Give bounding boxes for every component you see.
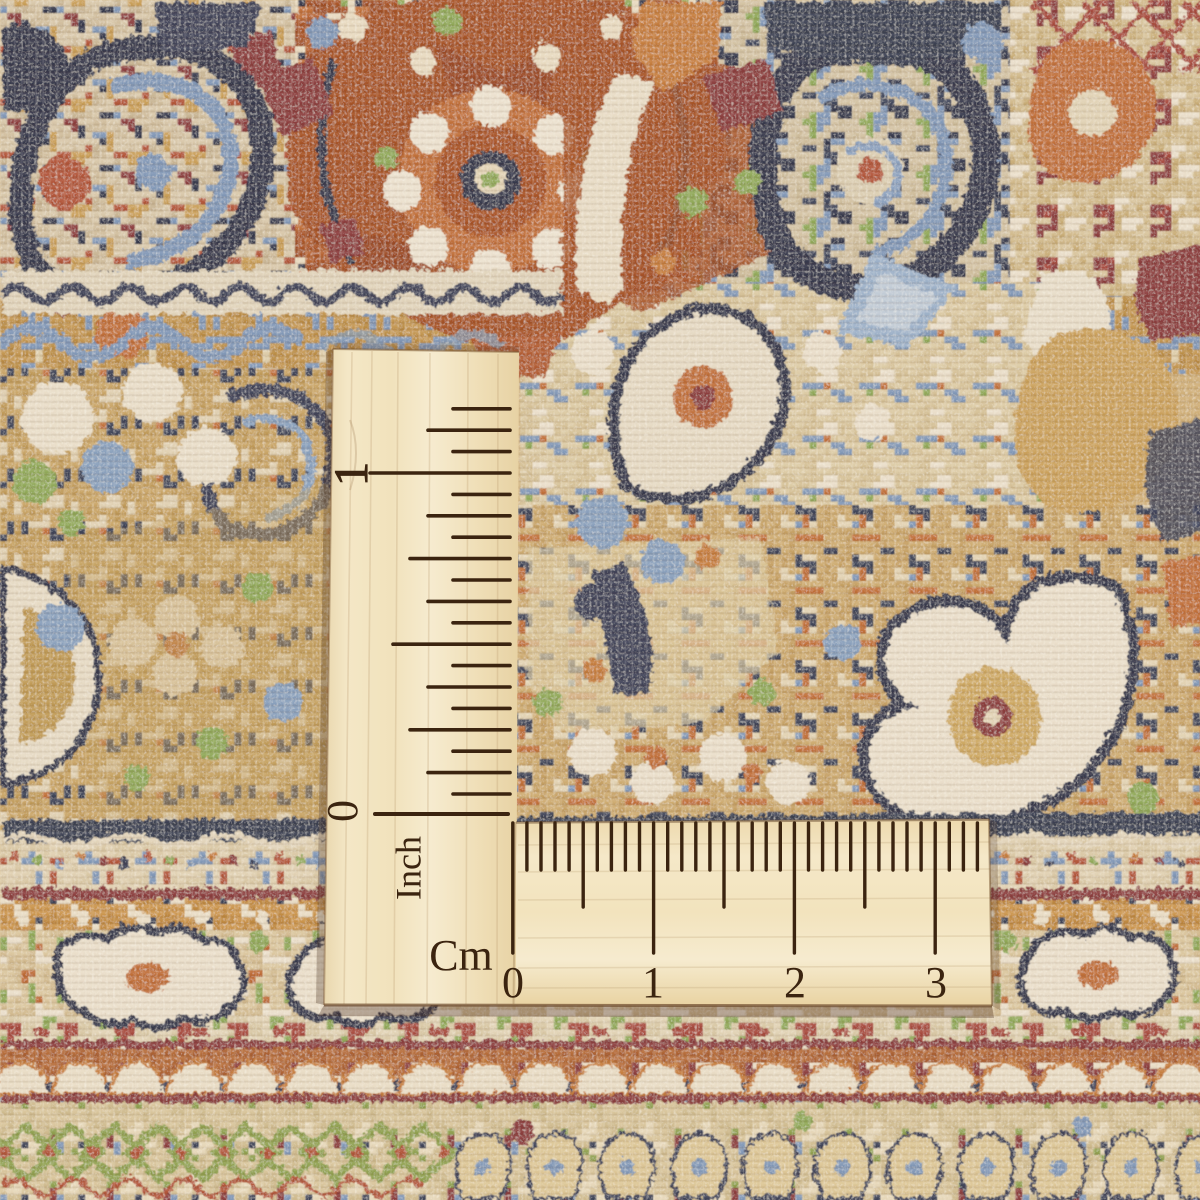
svg-text:0: 0 xyxy=(318,800,367,822)
svg-text:1: 1 xyxy=(325,462,378,486)
svg-text:1: 1 xyxy=(642,958,664,1007)
svg-text:Inch: Inch xyxy=(388,836,428,900)
svg-text:Cm: Cm xyxy=(429,931,493,980)
svg-text:0: 0 xyxy=(502,958,524,1007)
svg-text:2: 2 xyxy=(784,958,806,1007)
svg-text:3: 3 xyxy=(925,958,947,1007)
